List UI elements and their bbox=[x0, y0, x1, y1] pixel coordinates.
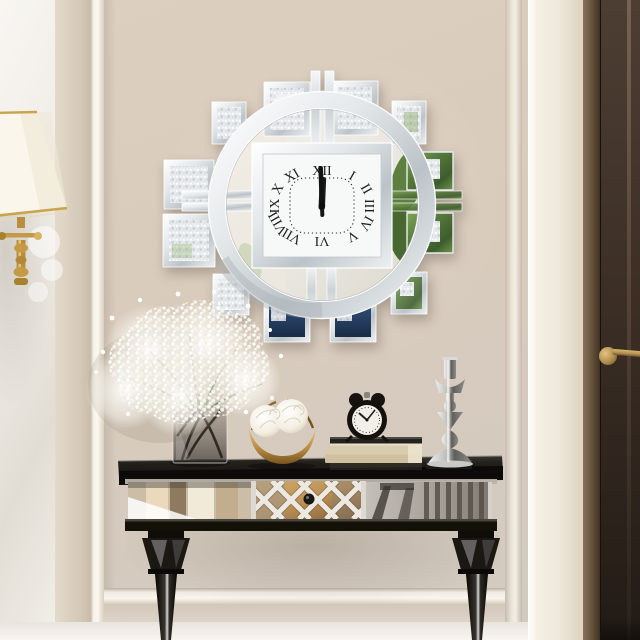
door-bottom-shadow bbox=[601, 618, 640, 640]
wall-lamp bbox=[0, 105, 82, 345]
book-stack bbox=[325, 437, 422, 463]
table-leg-right bbox=[452, 531, 500, 640]
door-frame bbox=[583, 0, 601, 640]
numeral-9: IX bbox=[268, 199, 283, 214]
tile bbox=[163, 214, 215, 267]
console-table bbox=[110, 450, 510, 640]
alarm-clock bbox=[346, 392, 388, 442]
clock-face: XII I II III IV V VI VII VIII IX X XI bbox=[252, 143, 392, 268]
lamp-shade-top-trim bbox=[0, 112, 37, 113]
silver-candlestick bbox=[425, 357, 475, 470]
babys-breath-bouquet bbox=[85, 290, 295, 460]
door-sheen bbox=[627, 0, 631, 640]
numeral-3: III bbox=[361, 199, 376, 213]
hallway-scene: XII I II III IV V VI VII VIII IX X XI bbox=[0, 0, 640, 640]
drawer-knob bbox=[304, 494, 315, 505]
table-leg-left bbox=[142, 531, 190, 640]
left-mirror-panel bbox=[128, 482, 252, 519]
table-apron bbox=[125, 479, 497, 531]
tile bbox=[164, 160, 214, 209]
right-mirror-panel bbox=[366, 482, 492, 519]
white-column bbox=[528, 0, 583, 640]
numeral-6: VI bbox=[314, 233, 329, 248]
hand-hub bbox=[319, 203, 325, 209]
door bbox=[601, 0, 640, 640]
